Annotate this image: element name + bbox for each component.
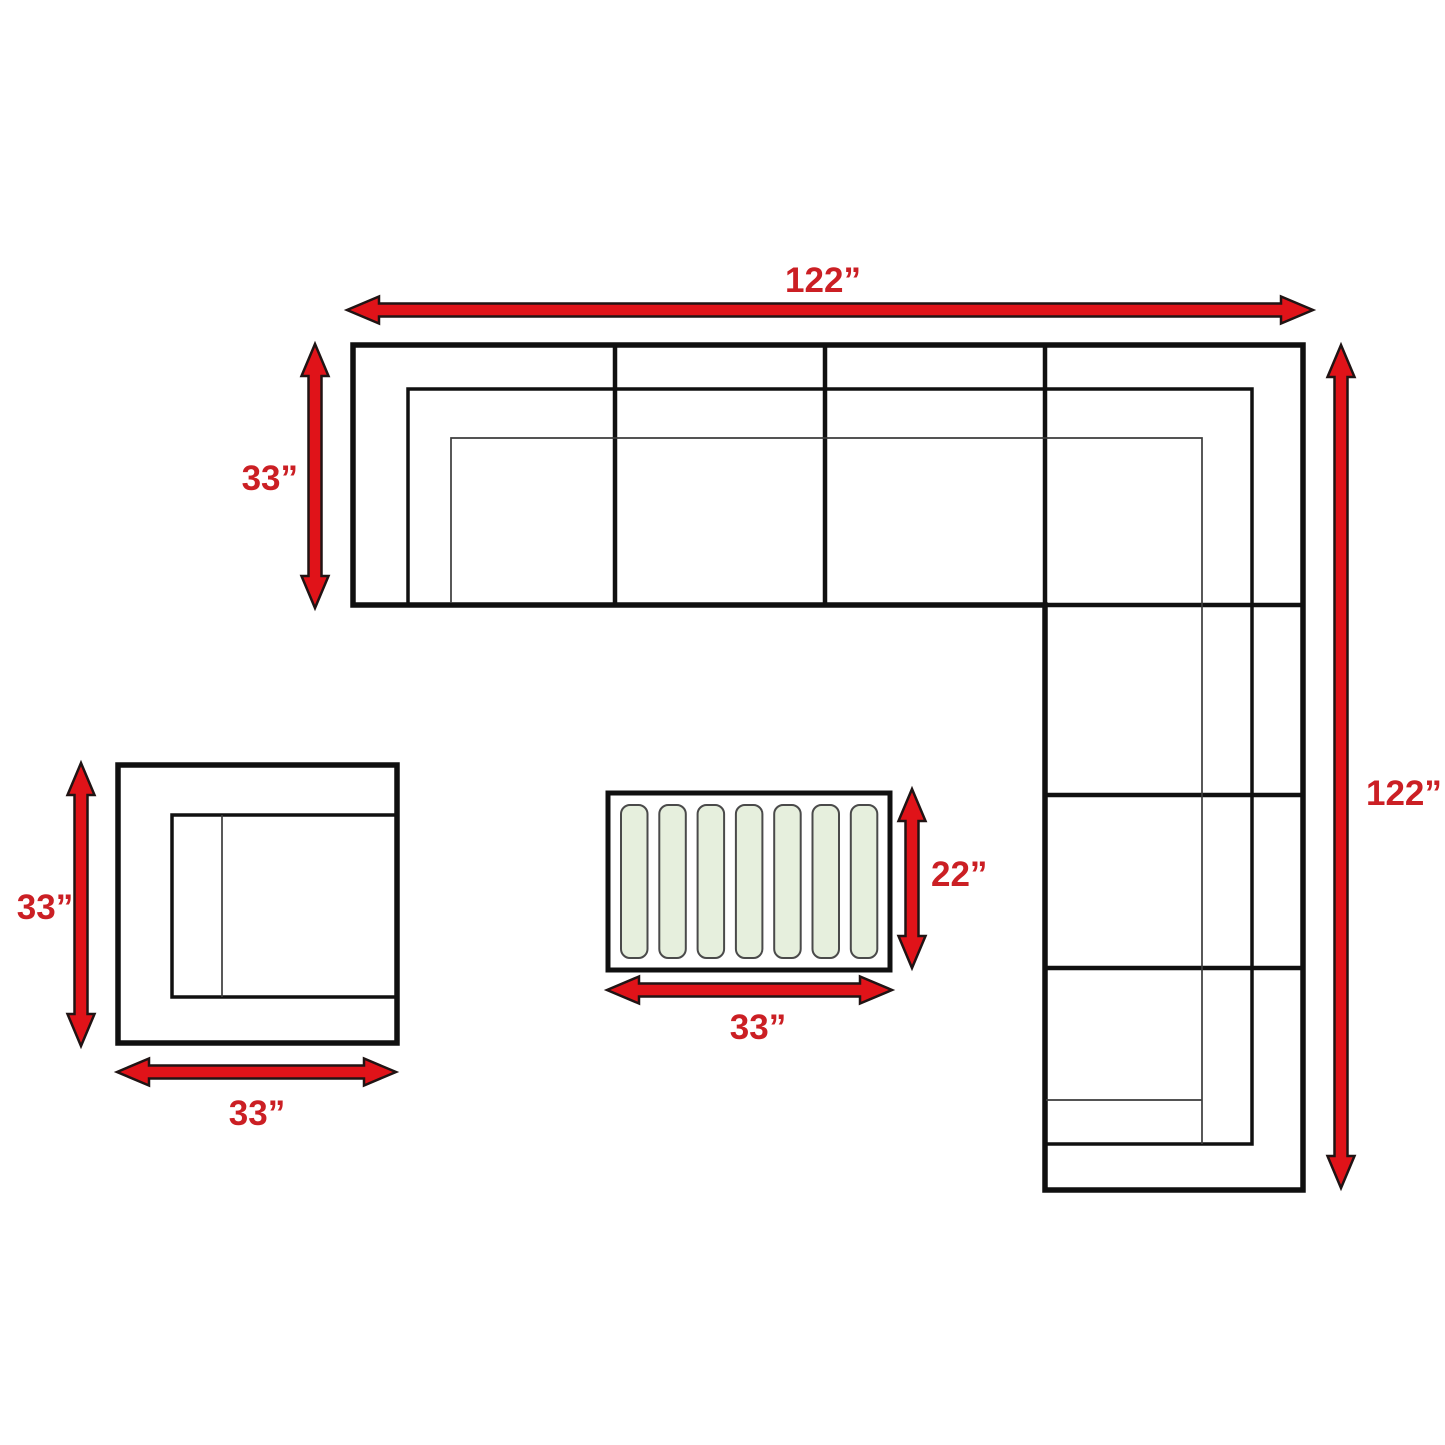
- sofa-length-label: 122”: [1366, 774, 1442, 813]
- table-slat: [736, 805, 763, 958]
- sectional-sofa: [353, 345, 1303, 1190]
- table-slat: [813, 805, 840, 958]
- sofa-length-arrow: [1328, 345, 1355, 1188]
- table-slats: [621, 805, 877, 958]
- table-depth-label: 22”: [931, 855, 987, 894]
- table-depth-arrow: [899, 789, 926, 968]
- sofa-width-label: 122”: [785, 261, 861, 300]
- table-slat: [659, 805, 686, 958]
- table-width-arrow: [607, 977, 892, 1004]
- sofa-depth-label: 33”: [242, 459, 298, 498]
- chair-depth-label: 33”: [17, 888, 73, 927]
- coffee-table: [608, 793, 890, 970]
- table-slat: [621, 805, 648, 958]
- chair-outer-outline: [118, 765, 397, 1043]
- sofa-depth-arrow: [302, 344, 329, 608]
- sofa-outer-outline: [353, 345, 1303, 1190]
- chair-width-arrow: [117, 1059, 396, 1086]
- table-slat: [774, 805, 801, 958]
- sofa-width-arrow: [347, 297, 1313, 324]
- table-slat: [698, 805, 725, 958]
- armchair: [118, 765, 397, 1043]
- furniture-dimension-diagram: 122” 33” 122” 33” 33” 22” 33”: [0, 0, 1445, 1445]
- chair-width-label: 33”: [229, 1094, 285, 1133]
- table-slat: [851, 805, 878, 958]
- diagram-canvas: 122” 33” 122” 33” 33” 22” 33”: [0, 0, 1445, 1445]
- table-width-label: 33”: [730, 1008, 786, 1047]
